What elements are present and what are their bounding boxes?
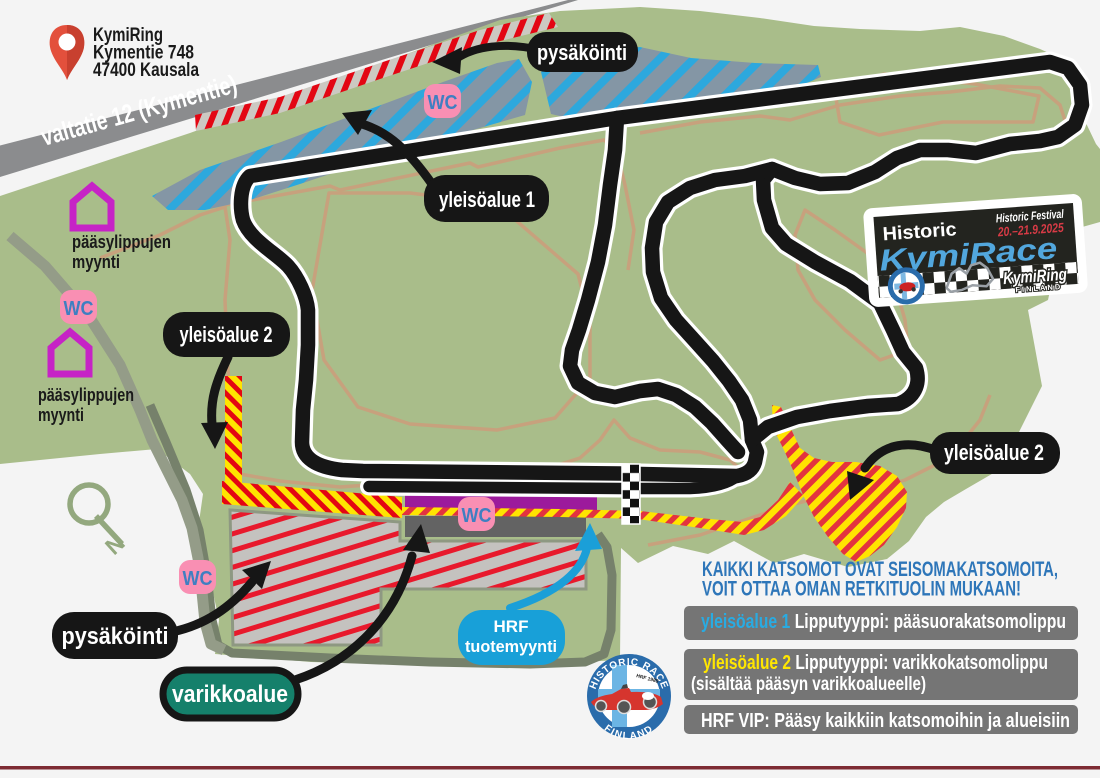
- svg-text:WC: WC: [462, 505, 492, 527]
- svg-text:pysäköinti: pysäköinti: [537, 40, 627, 65]
- svg-text:yleisöalue 2 Lipputyyppi: vari: yleisöalue 2 Lipputyyppi: varikkokatsomo…: [703, 652, 1048, 674]
- svg-text:HRF: HRF: [494, 617, 529, 636]
- svg-text:yleisöalue 2: yleisöalue 2: [944, 440, 1044, 465]
- svg-text:(sisältää pääsyn varikkoalueel: (sisältää pääsyn varikkoalueelle): [691, 674, 926, 695]
- svg-text:yleisöalue 1 Lipputyyppi: pääs: yleisöalue 1 Lipputyyppi: pääsuorakatsom…: [701, 611, 1066, 633]
- svg-text:tuotemyynti: tuotemyynti: [465, 637, 557, 656]
- svg-text:pääsylippujen: pääsylippujen: [38, 385, 134, 405]
- svg-text:HRF VIP: Pääsy kaikkiin katsom: HRF VIP: Pääsy kaikkiin katsomoihin ja a…: [701, 710, 1070, 732]
- svg-text:varikkoalue: varikkoalue: [172, 681, 288, 708]
- svg-text:myynti: myynti: [38, 405, 84, 425]
- svg-text:WC: WC: [64, 298, 94, 320]
- svg-text:WC: WC: [183, 568, 213, 590]
- svg-text:VOIT OTTAA OMAN RETKITUOLIN MU: VOIT OTTAA OMAN RETKITUOLIN MUKAAN!: [702, 578, 1021, 601]
- svg-text:myynti: myynti: [72, 252, 120, 272]
- svg-text:yleisöalue 1: yleisöalue 1: [439, 187, 535, 212]
- svg-text:yleisöalue 2: yleisöalue 2: [180, 322, 273, 347]
- svg-text:pysäköinti: pysäköinti: [62, 623, 169, 650]
- svg-text:WC: WC: [428, 92, 458, 114]
- svg-text:47400 Kausala: 47400 Kausala: [93, 59, 199, 81]
- svg-text:®: ®: [1069, 261, 1076, 270]
- svg-text:pääsylippujen: pääsylippujen: [72, 232, 171, 252]
